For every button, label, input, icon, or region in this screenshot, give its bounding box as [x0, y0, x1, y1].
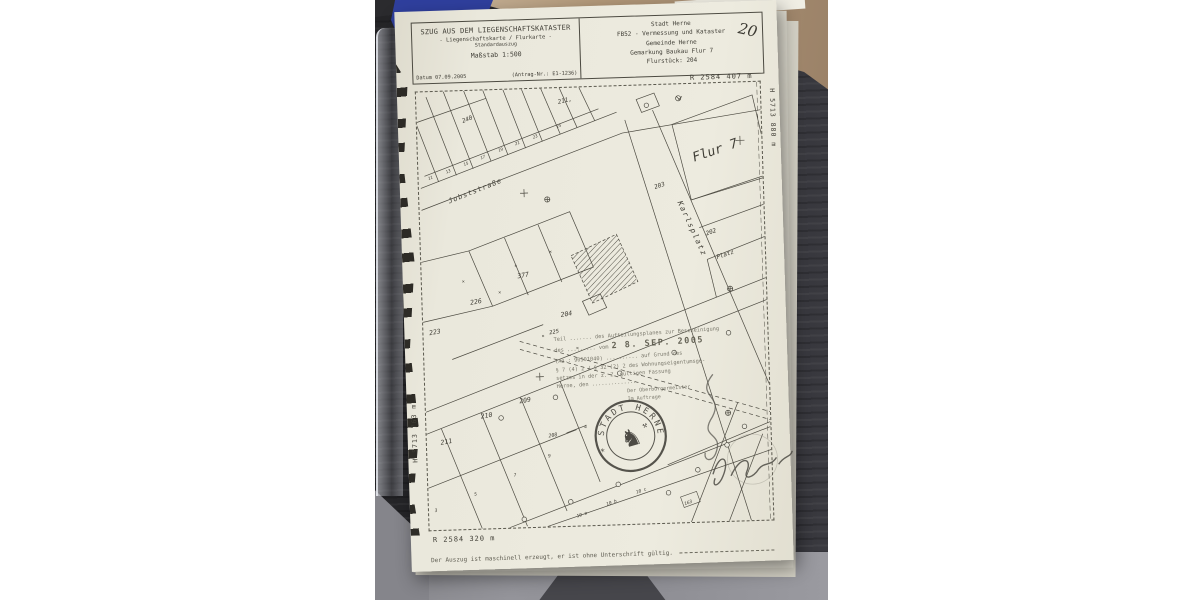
survey-cross-icon	[536, 373, 544, 381]
house-number: 15	[463, 160, 470, 167]
parcel-number: 211	[440, 437, 453, 447]
footer-dash-line	[679, 549, 774, 553]
house-number: 7	[513, 472, 517, 478]
corner-x-mark: ×	[462, 279, 465, 285]
header-left-cell: SZUG AUS DEM LIEGENSCHAFTSKATASTER - Lie…	[412, 18, 582, 83]
cadastral-extract-page: SZUG AUS DEM LIEGENSCHAFTSKATASTER - Lie…	[394, 0, 793, 572]
herne-horse-icon: ♞	[619, 420, 643, 454]
flur-label: Flur 7	[691, 136, 740, 165]
corner-x-mark: ×	[541, 334, 544, 340]
survey-cross-icon	[520, 189, 528, 197]
parcel-number: 202	[705, 227, 718, 237]
date-row: Datum 07.09.2005 (Antrag-Nr.: E1-1236)	[416, 70, 577, 81]
house-number: 11	[427, 175, 434, 182]
photo-of-document: SZUG AUS DEM LIEGENSCHAFTSKATASTER - Lie…	[375, 0, 828, 600]
parcel-number: 203	[653, 181, 666, 191]
house-number: 9	[548, 453, 552, 459]
street-label-karlsplatz: Karlsplatz	[675, 198, 709, 257]
house-number: 19	[497, 146, 504, 153]
parcel-number: 209	[519, 395, 532, 405]
screenshot: SZUG AUS DEM LIEGENSCHAFTSKATASTER - Lie…	[0, 0, 1200, 600]
house-number: 3	[433, 508, 438, 515]
parcel-number: 204	[560, 309, 573, 319]
document-date: Datum 07.09.2005	[416, 74, 466, 82]
coordinate-bottom-left: R 2584 320 m	[433, 534, 496, 544]
house-number: 10 a	[576, 510, 589, 519]
corner-x-mark: ×	[498, 290, 501, 296]
request-number: (Antrag-Nr.: E1-1236)	[512, 70, 578, 78]
parcel-number: 208	[548, 432, 558, 439]
coordinate-right-vertical: H 5713 880 m	[768, 88, 778, 147]
map-scale: Maßstab 1:500	[413, 48, 580, 61]
footer-note: Der Auszug ist maschinell erzeugt, er is…	[431, 550, 673, 565]
parcel-number: 211,	[557, 96, 573, 106]
parcel-number: 223	[428, 327, 441, 337]
crossed-hammers-icon: ⚒	[641, 420, 648, 430]
parcel-number: 210	[480, 411, 493, 421]
parcel-number: 226	[470, 297, 483, 307]
header-right-cell: Stadt Herne FB52 - Vermessung und Katast…	[580, 13, 764, 79]
parcel-number: 377	[516, 270, 530, 280]
signature-name	[704, 430, 796, 493]
house-number: 21	[514, 140, 521, 147]
corner-x-mark: ×	[549, 249, 552, 255]
street-label-jobststrasse: Jobststraße	[446, 177, 503, 206]
platz-label: Platz	[716, 248, 736, 261]
corner-x-mark: ×	[514, 263, 517, 269]
parcel-number: 240	[461, 114, 474, 125]
coordinate-left-vertical: H 5713 763 m	[410, 404, 420, 463]
house-number: 10 b	[606, 498, 619, 507]
house-number: 5	[474, 491, 478, 497]
house-number: 17	[479, 154, 486, 161]
house-number: 23	[532, 133, 539, 140]
house-number: 13	[445, 168, 452, 175]
